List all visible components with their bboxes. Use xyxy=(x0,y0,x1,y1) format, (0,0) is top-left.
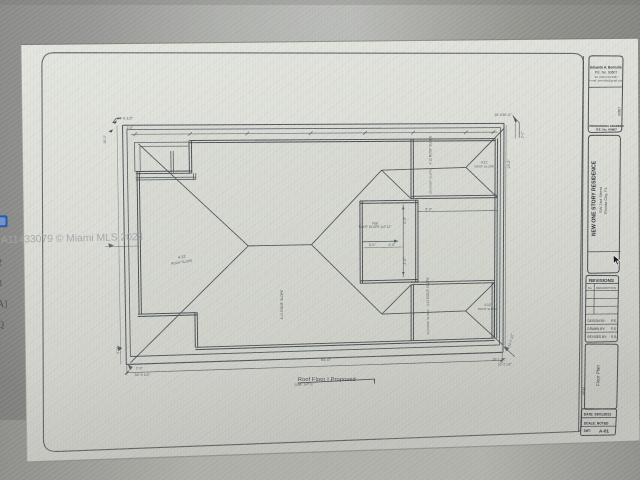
svg-text:3: 3 xyxy=(0,279,2,289)
svg-text:Q: Q xyxy=(0,321,4,331)
svg-text:A]: A] xyxy=(0,300,7,310)
svg-text:2: 2 xyxy=(0,259,2,269)
